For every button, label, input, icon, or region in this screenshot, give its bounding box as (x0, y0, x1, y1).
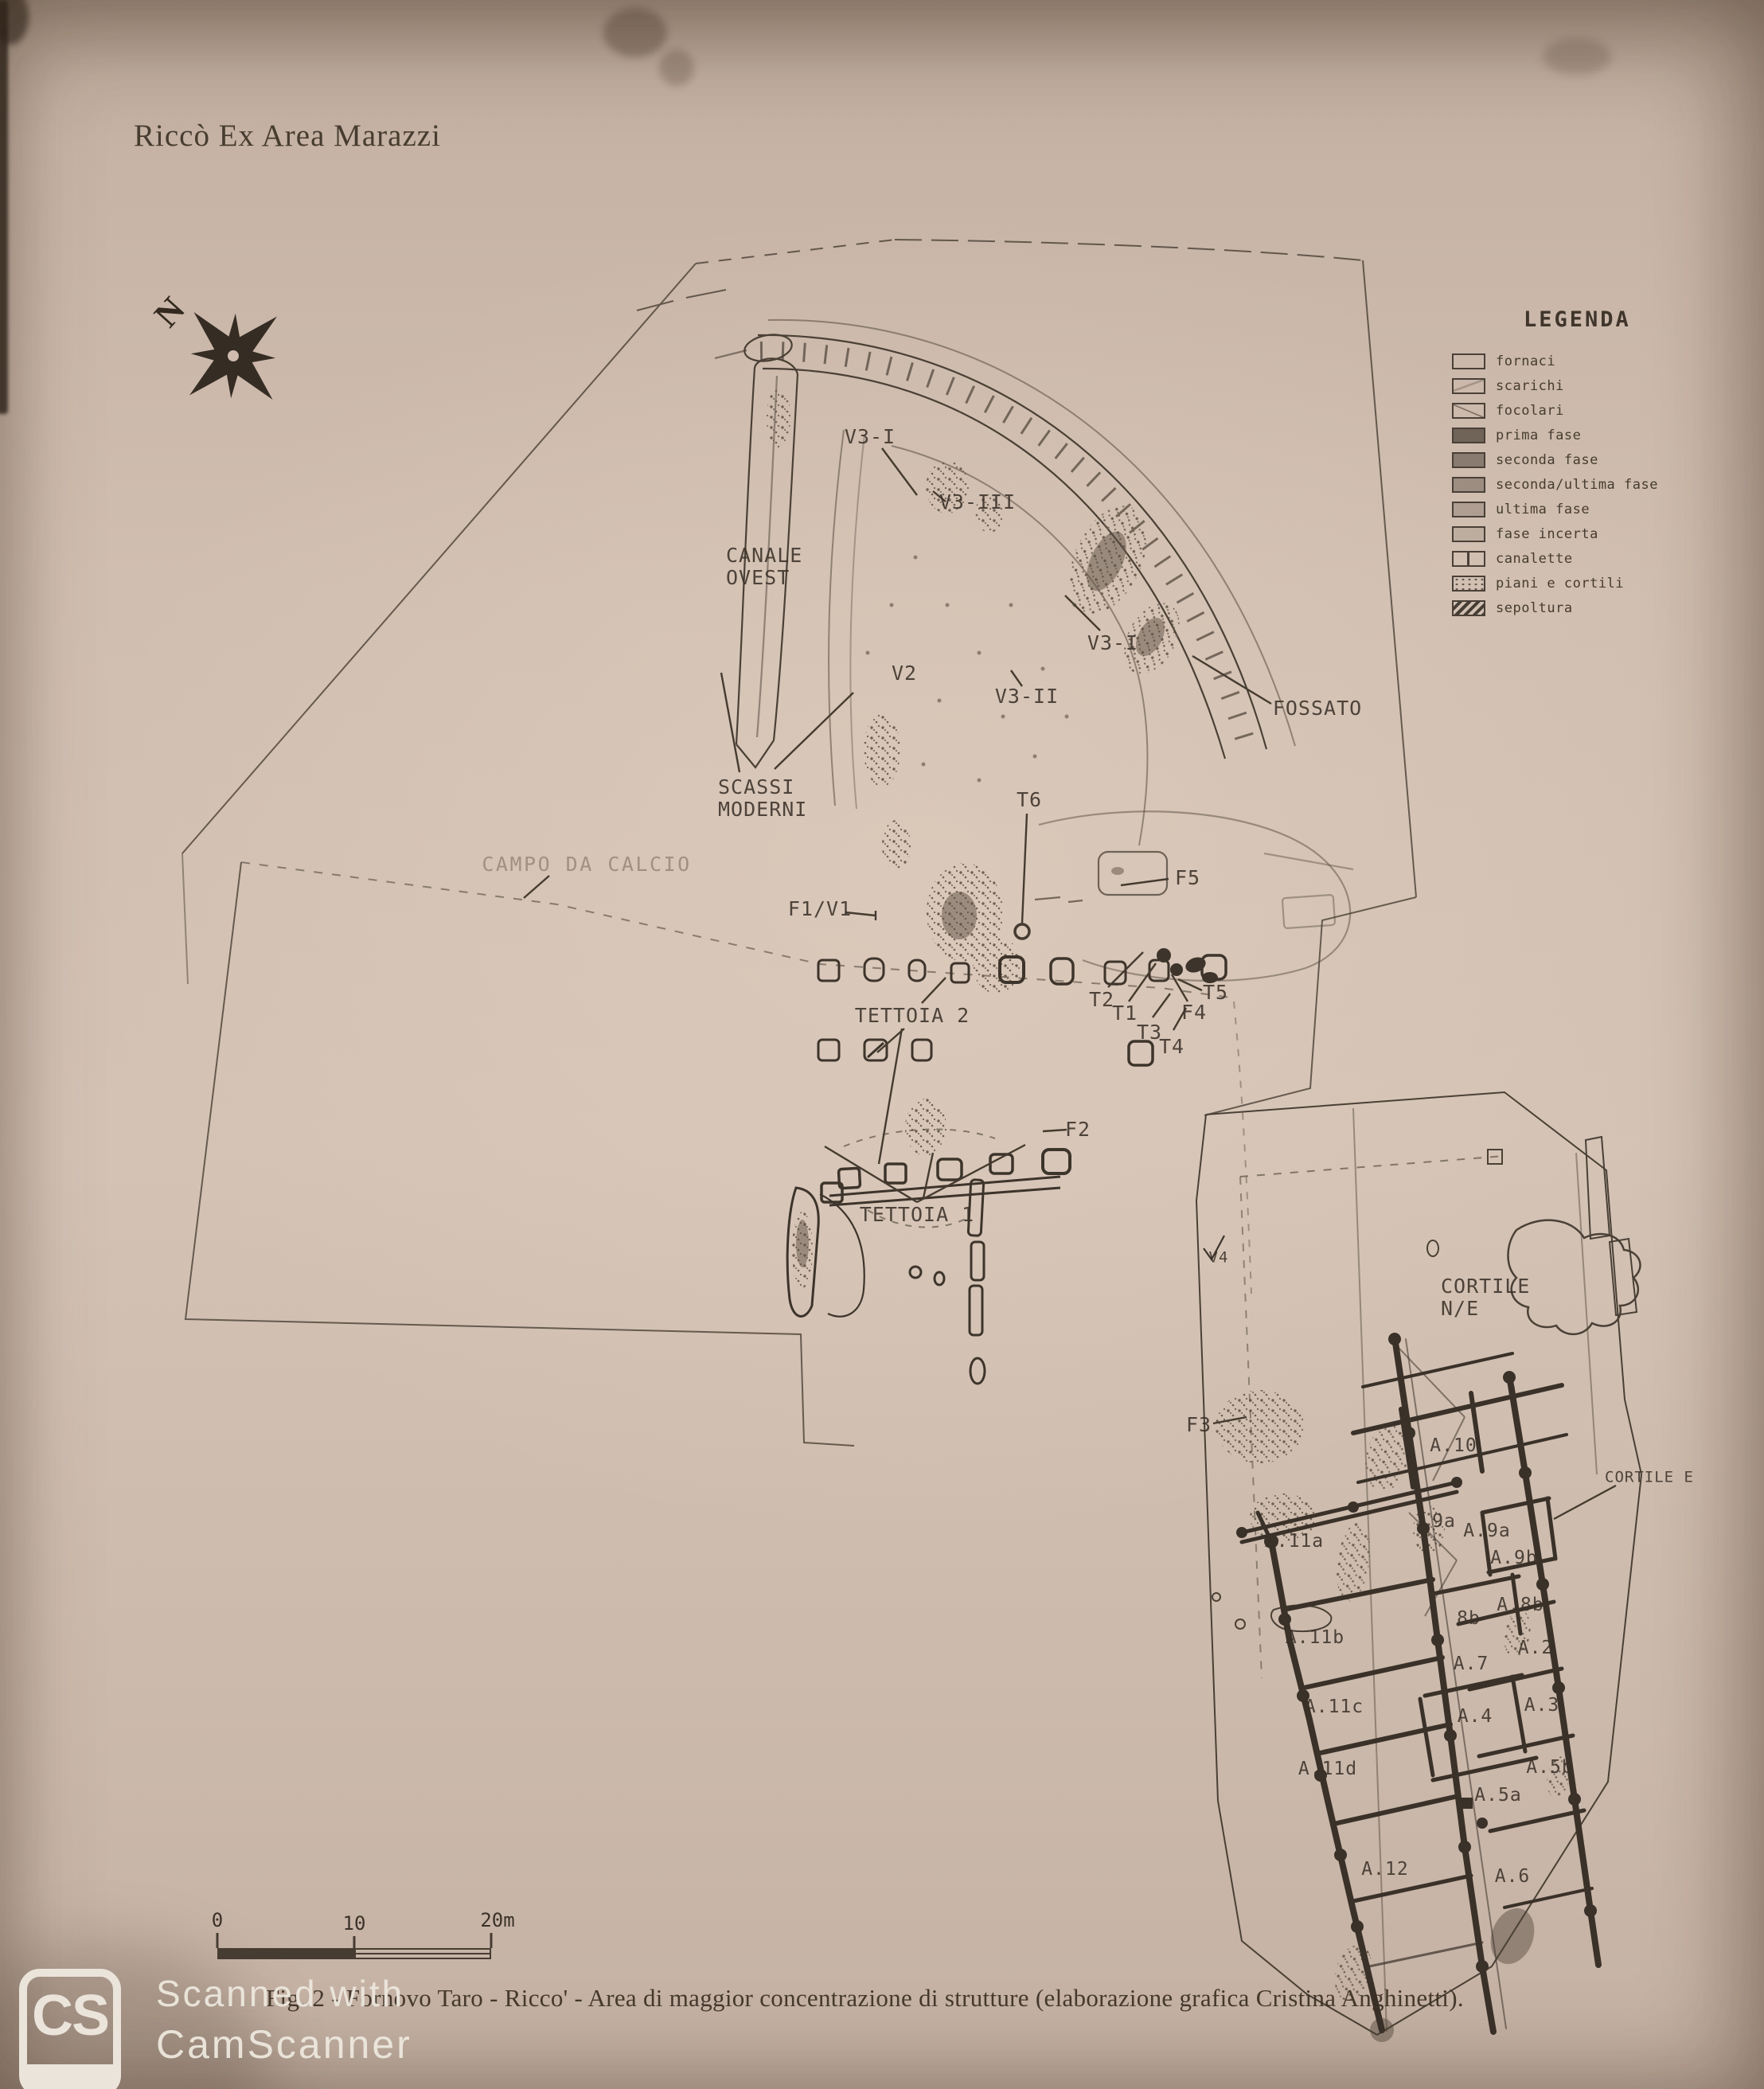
scale-label-0: 0 (212, 1909, 223, 1931)
plan-label-a-5a: A.5a (1474, 1786, 1521, 1806)
plan-label-v3-i: V3-I (1087, 632, 1138, 654)
legend-swatch-speckled (1452, 576, 1485, 592)
plan-label-a-3: A.3 (1524, 1696, 1560, 1716)
legend-swatch-scribble (1452, 378, 1485, 394)
legend-label: sepoltura (1496, 600, 1573, 616)
plan-label-canale-ovest: CANALE OVEST (726, 545, 802, 589)
scanned-page: Riccò Ex Area Marazzi N (0, 0, 1764, 2089)
plan-label-t4: T4 (1159, 1036, 1184, 1058)
legend-item-sepoltura: sepoltura (1452, 595, 1658, 620)
plan-label-f4: F4 (1181, 1002, 1207, 1024)
plan-label-a-11d: A.11d (1298, 1759, 1357, 1780)
legend-label: fornaci (1496, 353, 1555, 369)
legend-item-seconda-ultima-fase: seconda/ultima fase (1452, 472, 1658, 497)
scale-bar-open-segment (354, 1948, 491, 1959)
legend-item-focolari: focolari (1452, 398, 1658, 423)
plan-label-scassi-moderni: SCASSI MODERNI (718, 776, 807, 821)
plan-label-a-4: A.4 (1458, 1707, 1493, 1728)
legend-swatch-divided (1452, 551, 1485, 567)
plan-label-a-8b: A.8b (1497, 1595, 1543, 1616)
legend-swatch-fill-lighter (1452, 502, 1485, 517)
plan-label-t2: T2 (1089, 989, 1114, 1011)
plan-label-a-2: A.2 (1518, 1638, 1554, 1659)
plan-label-a-7: A.7 (1454, 1654, 1489, 1675)
plan-label-t6: T6 (1017, 789, 1042, 811)
legend-item-seconda-fase: seconda fase (1452, 447, 1658, 472)
plan-label-a-11c: A.11c (1305, 1697, 1364, 1718)
legend-label: focolari (1496, 403, 1564, 419)
scale-bar-ticks (217, 1933, 491, 1948)
dark-deposit-accents (796, 525, 1542, 2042)
plan-label-a-9b: A.9b (1490, 1548, 1537, 1569)
plan-label-a-11a: A.11a (1265, 1532, 1324, 1552)
plan-label-v3-iii: V3-III (939, 491, 1016, 513)
plan-label-tettoia-1: TETTOIA 1 (860, 1204, 974, 1226)
plan-label-cortile-e: CORTILE E (1605, 1469, 1694, 1486)
plan-label-a-5b: A.5b (1526, 1758, 1573, 1779)
plan-label-a-12: A.12 (1361, 1860, 1408, 1880)
plan-label-v3-i: V3-I (845, 426, 896, 448)
plan-label-campo-da-calcio: CAMPO DA CALCIO (482, 853, 691, 876)
scale-bar-filled-segment (217, 1948, 354, 1959)
plan-label-f1-v1: F1/V1 (788, 898, 852, 920)
plan-label-tettoia-2: TETTOIA 2 (855, 1005, 970, 1027)
plan-label-v4: V4 (1209, 1249, 1229, 1266)
legend-swatch-fill-medium (1452, 452, 1485, 468)
legend-swatch-diagonal (1452, 403, 1485, 419)
legend-item-canalette: canalette (1452, 546, 1658, 571)
legend-label: canalette (1496, 551, 1573, 567)
legend-swatch-fill-light (1452, 477, 1485, 493)
legend-label: prima fase (1496, 428, 1581, 443)
legend-label: piani e cortili (1496, 576, 1624, 592)
plan-label-a-11b: A.11b (1286, 1628, 1344, 1649)
plan-label-a-6: A.6 (1495, 1867, 1531, 1888)
plan-label-fossato: FOSSATO (1273, 697, 1362, 720)
legend-item-piani-e-cortili: piani e cortili (1452, 571, 1658, 595)
site-plan-drawing (0, 0, 1764, 2089)
building-complex (1196, 1092, 1641, 2035)
plan-label-8b: 8b (1457, 1609, 1481, 1630)
legend-label: seconda/ultima fase (1496, 477, 1658, 493)
legend-label: seconda fase (1496, 452, 1598, 468)
plan-label-f2: F2 (1065, 1119, 1091, 1141)
plan-label-f5: F5 (1175, 867, 1200, 889)
scale-label-10: 10 (343, 1912, 366, 1935)
legend-label: ultima fase (1496, 502, 1590, 517)
legend-label: fase incerta (1496, 526, 1598, 542)
tettoia1-structure (787, 1130, 1224, 1384)
plan-label-a-10: A.10 (1430, 1436, 1477, 1457)
legend-item-scarichi: scarichi (1452, 373, 1658, 398)
figure-caption: Fig. 2 - Fornovo Taro - Ricco' - Area di… (266, 1984, 1691, 2013)
plan-label-v3-ii: V3-II (995, 685, 1059, 708)
fossato-ditch (758, 320, 1295, 845)
central-structures (1035, 811, 1353, 981)
legend-item-fornaci: fornaci (1452, 349, 1658, 373)
compass-rose-icon (149, 271, 318, 441)
legend-swatch-fill-faint (1452, 526, 1485, 542)
plan-label-9a: 9a (1432, 1512, 1456, 1533)
legend-label: scarichi (1496, 378, 1564, 394)
legend-item-fase-incerta: fase incerta (1452, 521, 1658, 546)
legend-swatch-empty (1452, 353, 1485, 369)
plan-label-v2: V2 (892, 662, 917, 685)
legend: fornaciscarichifocolariprima faseseconda… (1452, 349, 1658, 620)
legend-item-ultima-fase: ultima fase (1452, 497, 1658, 521)
legend-item-prima-fase: prima fase (1452, 423, 1658, 447)
legend-swatch-hatched (1452, 600, 1485, 616)
plan-label-f3: F3 (1186, 1414, 1212, 1436)
plan-label-cortile-n-e: CORTILE N/E (1441, 1275, 1530, 1320)
plan-label-t1: T1 (1112, 1002, 1138, 1025)
scale-label-20m: 20m (480, 1909, 514, 1931)
legend-title: LEGENDA (1524, 307, 1631, 332)
plan-label-a-9a: A.9a (1463, 1521, 1510, 1542)
legend-swatch-fill-dark (1452, 428, 1485, 443)
